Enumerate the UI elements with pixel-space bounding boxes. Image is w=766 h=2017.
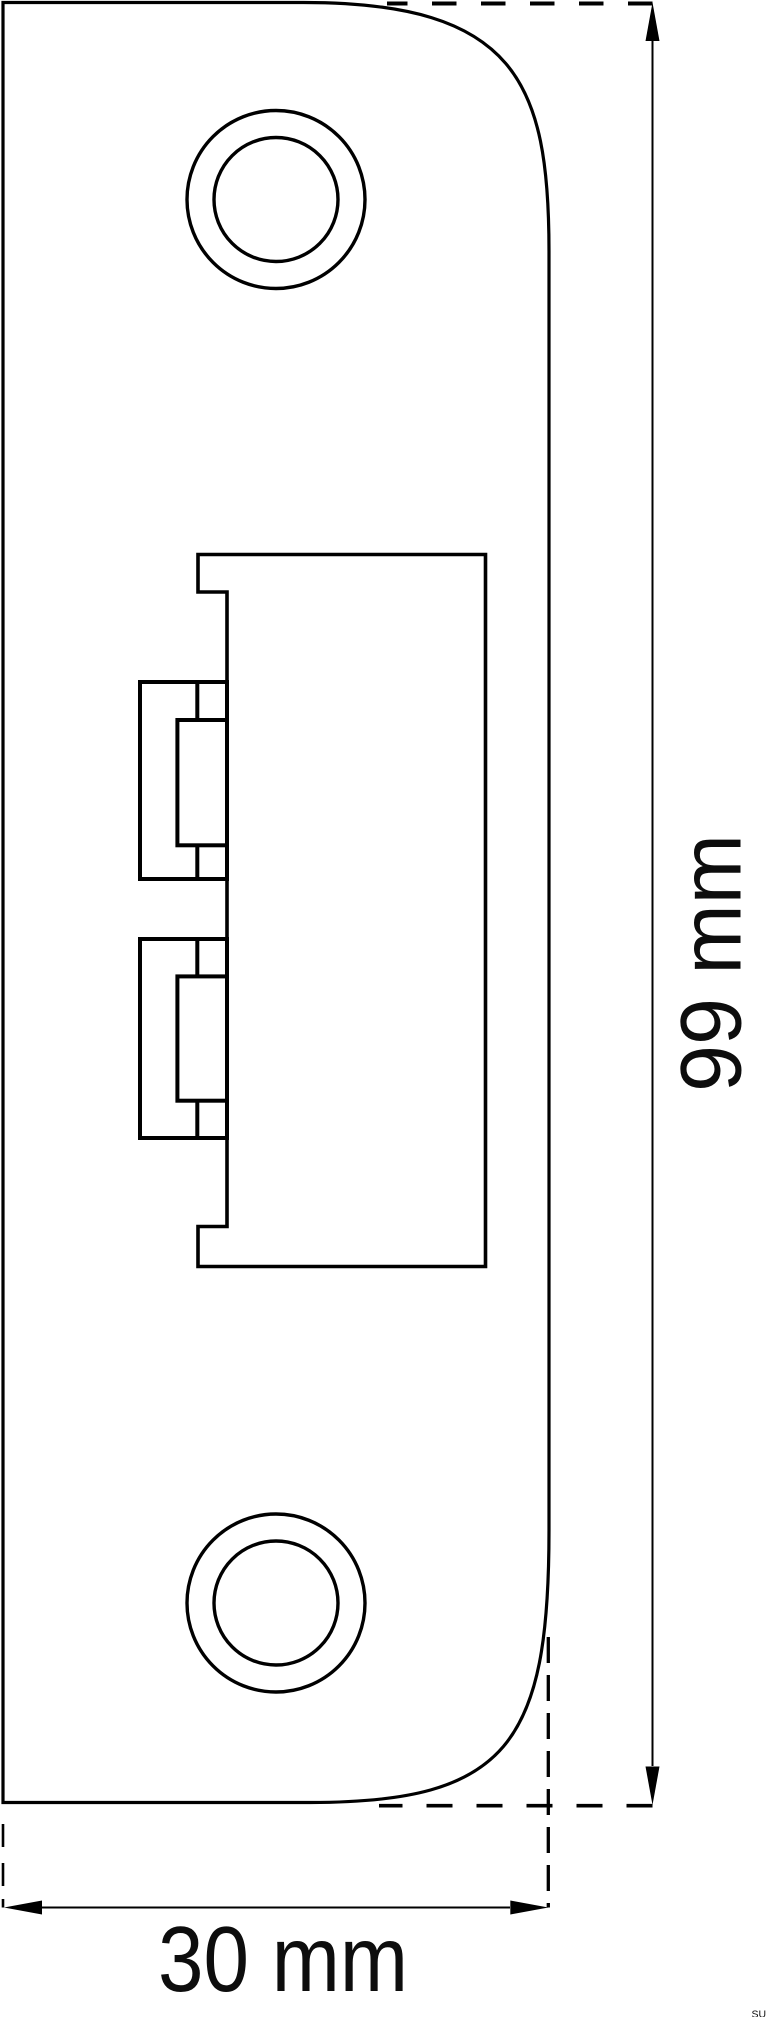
- svg-text:30 mm: 30 mm: [158, 1907, 408, 2011]
- svg-text:SU: SU: [752, 2009, 766, 2017]
- svg-text:99 mm: 99 mm: [664, 834, 760, 1092]
